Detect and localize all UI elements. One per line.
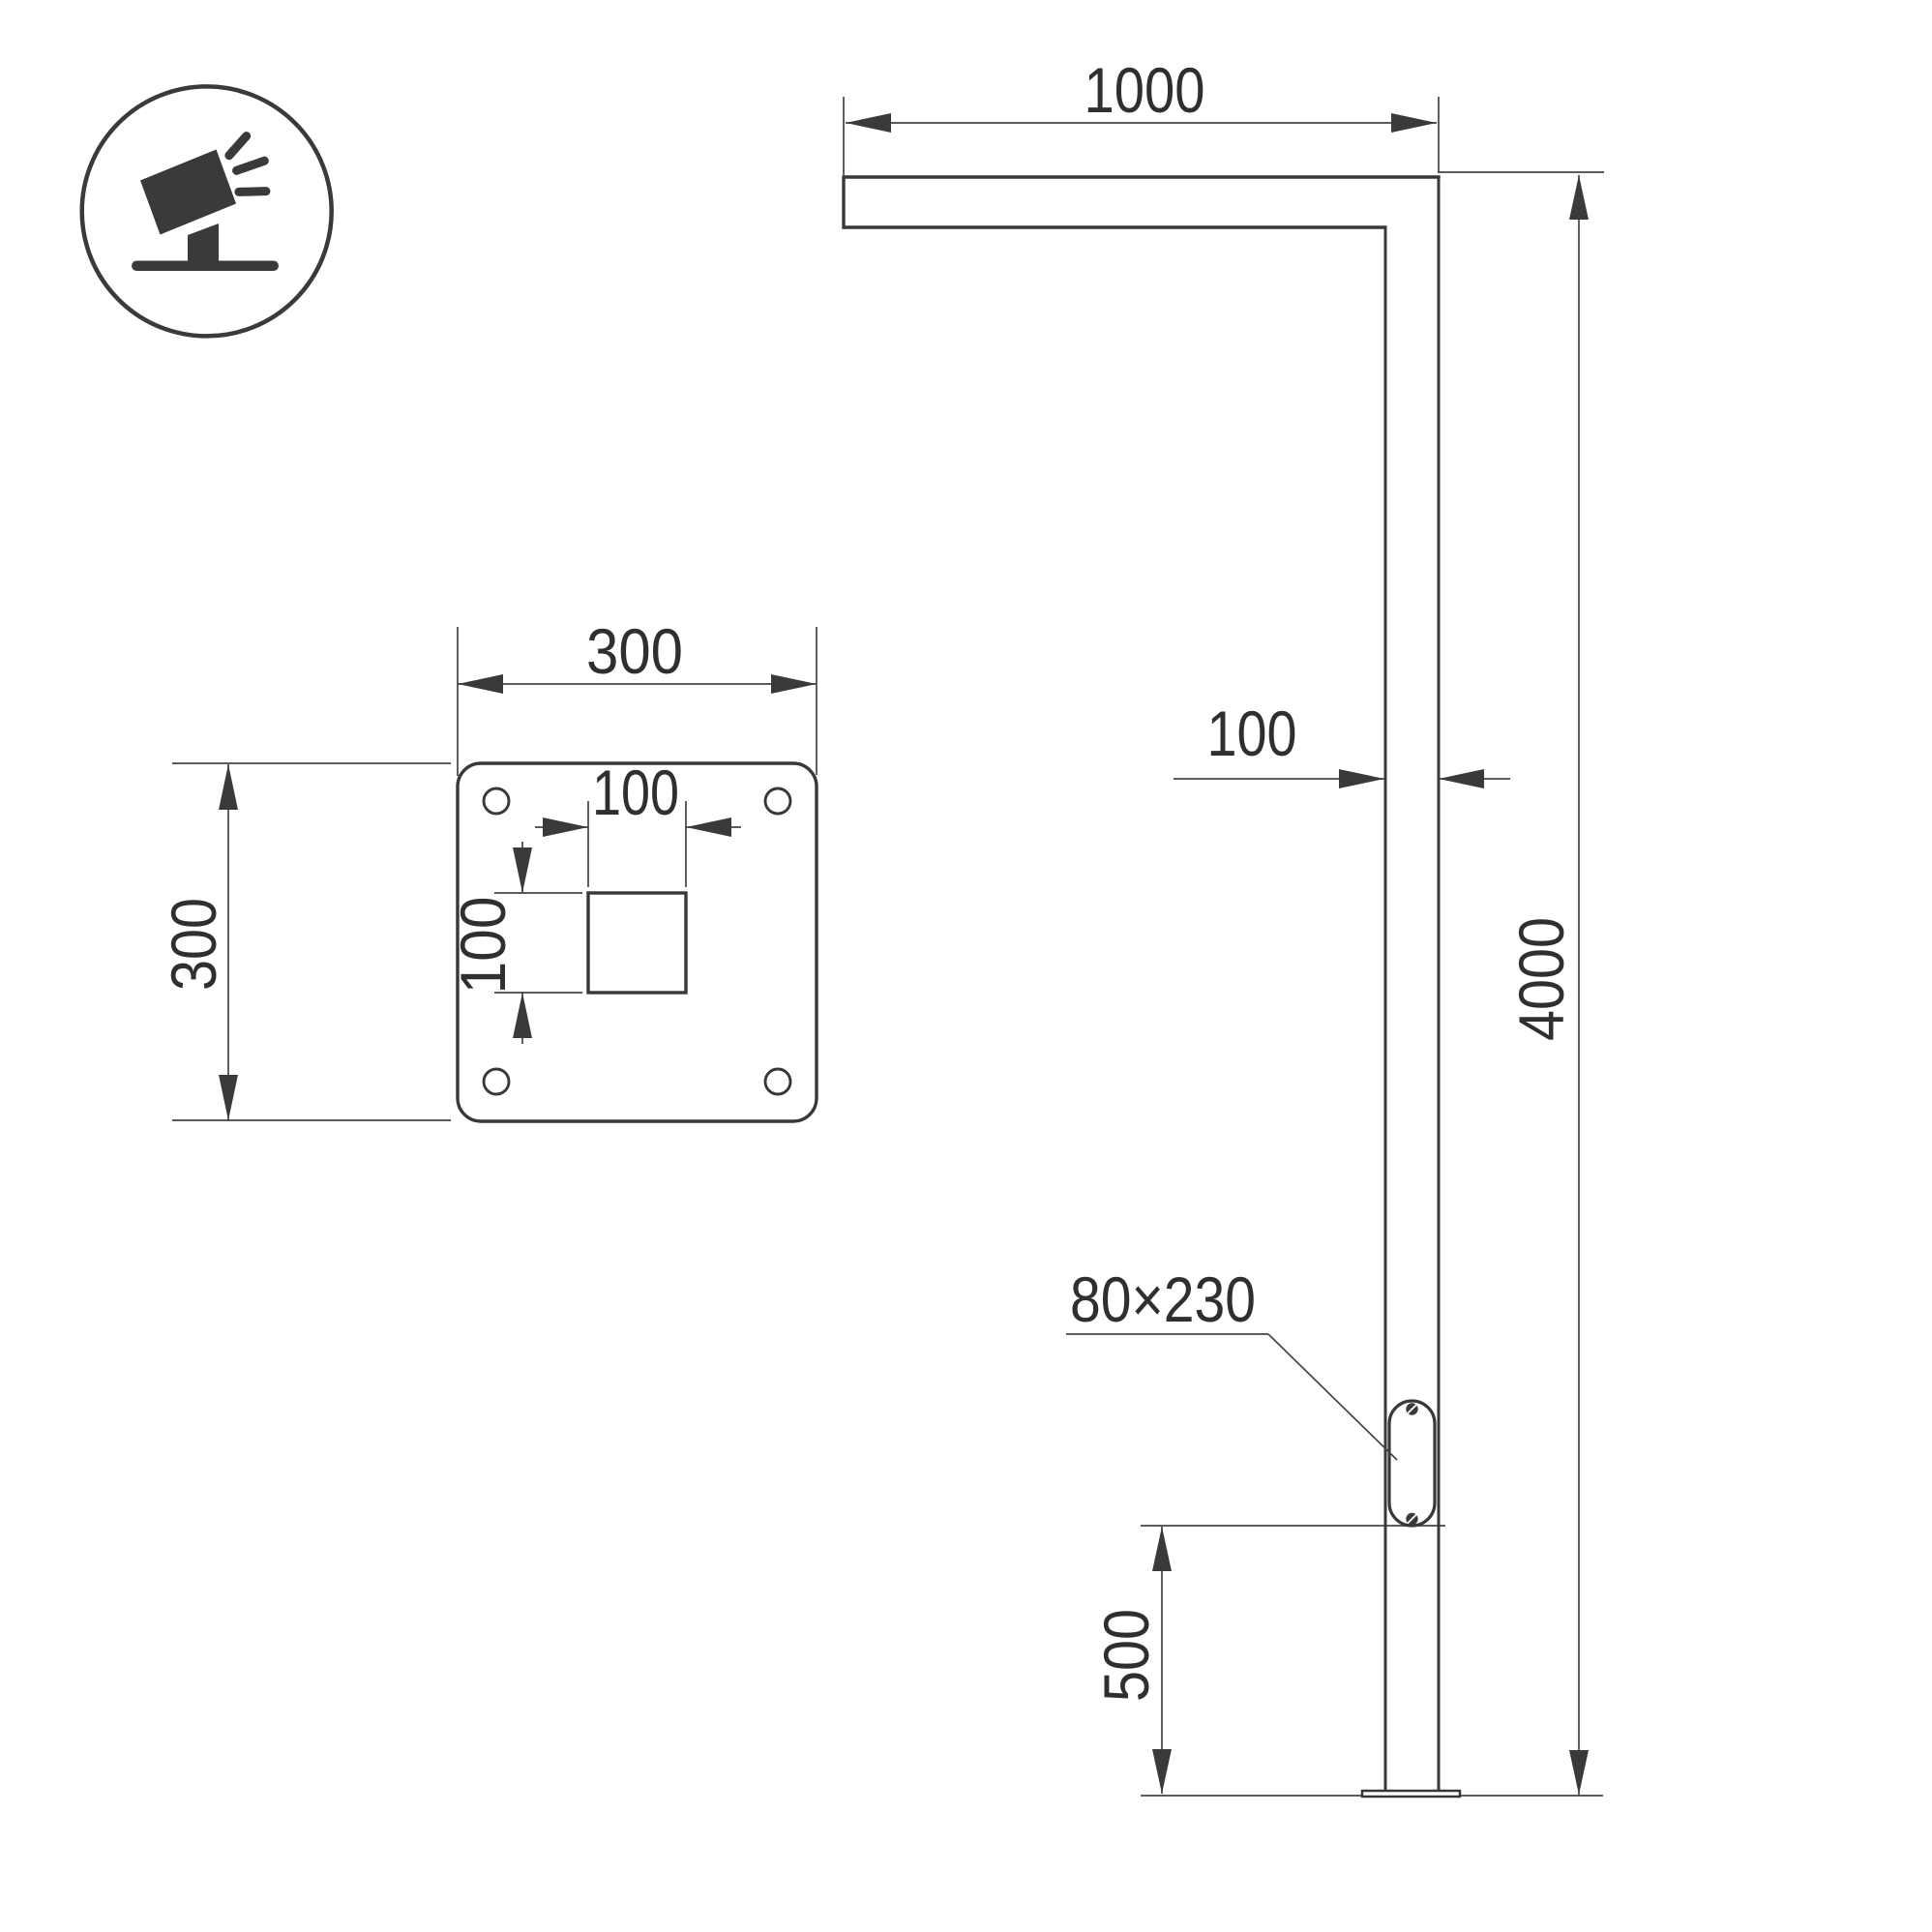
- svg-text:300: 300: [158, 898, 229, 991]
- svg-text:100: 100: [1207, 698, 1297, 769]
- svg-text:100: 100: [592, 757, 679, 828]
- svg-text:100: 100: [447, 897, 519, 995]
- svg-text:4000: 4000: [1505, 917, 1577, 1041]
- svg-text:500: 500: [1090, 1609, 1162, 1702]
- svg-text:1000: 1000: [1085, 54, 1205, 126]
- svg-text:80×230: 80×230: [1070, 1263, 1256, 1335]
- svg-text:300: 300: [586, 615, 683, 687]
